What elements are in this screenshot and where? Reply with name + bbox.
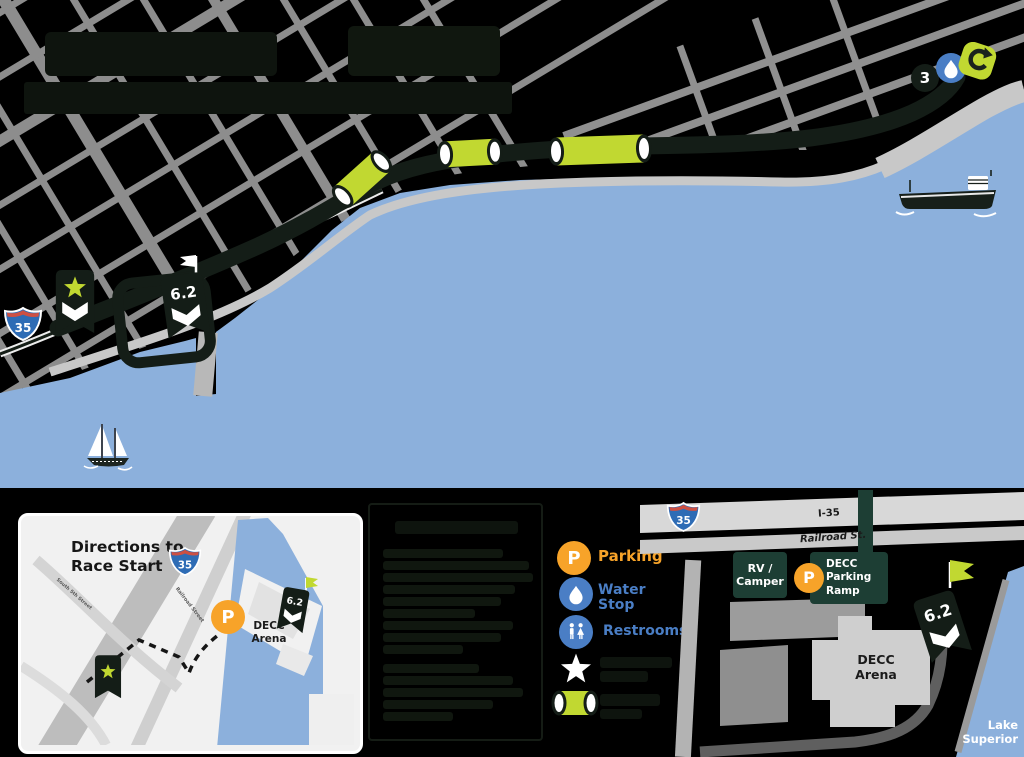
shield-number: 35 <box>15 321 32 335</box>
decc-parking-ramp-zone: DECC Parking Ramp P <box>810 552 888 604</box>
svg-text:35: 35 <box>676 515 691 527</box>
decc-area-map: 35 I-35 Railroad St. RV / Camper DECC Pa… <box>640 490 1024 757</box>
inset-start-marker <box>93 654 123 704</box>
legend-water-stop-marker <box>559 577 593 611</box>
illegible-race-title-block <box>45 32 277 76</box>
i35-road-label: I-35 <box>818 507 841 519</box>
legend-tunnel-icon <box>550 688 600 722</box>
legend-parking-marker: P <box>557 541 591 575</box>
restrooms-icon <box>564 620 588 644</box>
street-band <box>675 560 701 757</box>
ramp-parking-marker: P <box>794 563 824 593</box>
finish-marker-6point2: 6.2 <box>156 248 216 344</box>
lime-flag-icon <box>306 577 318 592</box>
inset-title: Directions to Race Start <box>71 538 184 577</box>
inset-interstate-35-shield: 35 <box>168 546 201 581</box>
water-drop-icon <box>565 582 587 606</box>
directions-inset-panel: Directions to Race Start 35 South 5th St… <box>18 513 363 754</box>
decc-finish-marker: 6.2 <box>912 554 978 670</box>
race-course-map: 35 6.2 3 <box>0 0 1024 757</box>
mile-text: 6.2 <box>169 282 198 304</box>
mile-marker-3: 3 <box>911 64 939 92</box>
lime-flag-icon <box>950 560 974 588</box>
rv-camper-zone: RV / Camper <box>733 552 787 598</box>
illegible-race-subtitle-block <box>24 82 512 114</box>
svg-text:35: 35 <box>178 560 192 571</box>
illegible-race-logo-block <box>348 26 500 76</box>
legend-restrooms-marker <box>559 615 593 649</box>
start-line-marker <box>54 268 96 340</box>
decc-interstate-35-shield: 35 <box>666 501 700 537</box>
turnaround-marker <box>958 42 998 82</box>
legend-start-star-icon <box>561 653 591 687</box>
illegible-legend-label <box>600 709 642 719</box>
illegible-info-panel <box>368 503 543 741</box>
parking-lot <box>720 645 788 726</box>
lake-superior-label: Lake Superior <box>948 718 1018 747</box>
legend-water-stop-label: Water Stop <box>598 583 645 614</box>
interstate-35-shield: 35 <box>3 306 41 340</box>
decc-arena-label: DECC Arena <box>838 652 914 682</box>
inset-finish-marker: 6.2 <box>276 574 320 640</box>
